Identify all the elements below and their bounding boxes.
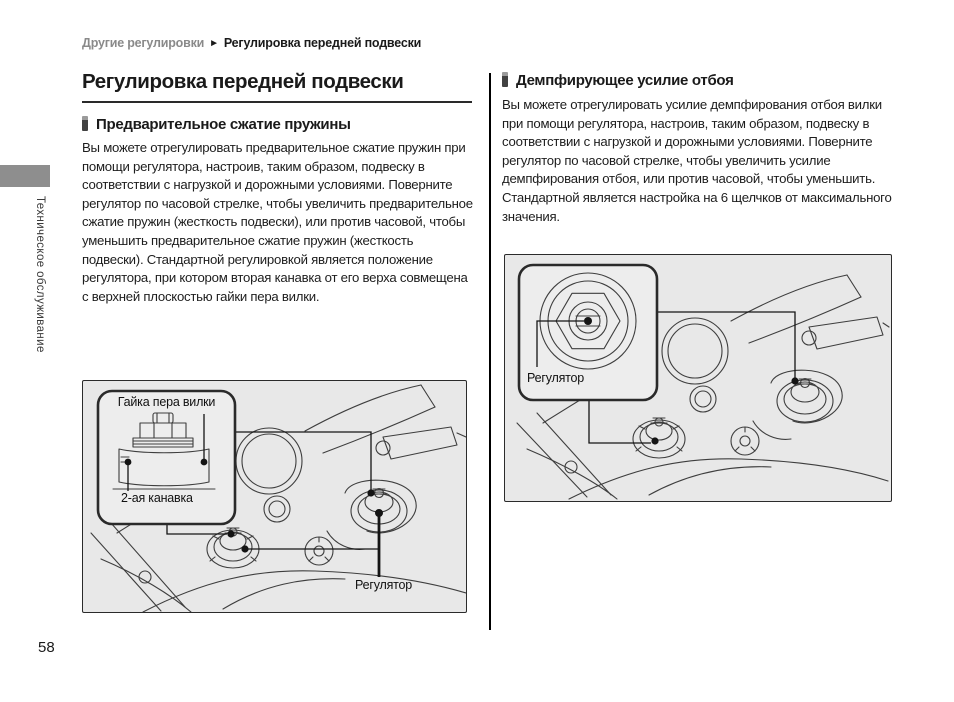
manual-page: Техническое обслуживание Другие регулиро… <box>0 0 954 702</box>
callout-connector-top <box>657 312 795 379</box>
page-number: 58 <box>38 639 55 656</box>
section-heading-text: Предварительное сжатие пружины <box>96 116 351 133</box>
breadcrumb: Другие регулировки►Регулировка передней … <box>82 36 421 50</box>
label-fork-cap-nut: Гайка пера вилки <box>98 395 235 409</box>
section-marker-icon <box>502 72 508 87</box>
section-heading-spring-preload: Предварительное сжатие пружины <box>82 116 351 133</box>
label-adjuster: Регулятор <box>527 371 584 385</box>
figure-rebound-damping: Регулятор <box>504 254 892 502</box>
figure-spring-preload: Гайка пера вилки 2-ая канавка Регулятор <box>82 380 467 613</box>
breadcrumb-arrow-icon: ► <box>209 38 219 49</box>
chapter-label: Техническое обслуживание <box>34 196 46 353</box>
title-rule <box>82 101 472 103</box>
breadcrumb-current: Регулировка передней подвески <box>224 36 421 50</box>
chapter-tab <box>0 165 50 187</box>
body-text-rebound-damping: Вы можете отрегулировать усилие демпфиро… <box>502 96 896 226</box>
callout-connector-bottom <box>167 524 227 534</box>
callout-connector-top <box>235 432 371 491</box>
section-heading-text: Демпфирующее усилие отбоя <box>516 72 734 89</box>
page-title: Регулировка передней подвески <box>82 70 403 94</box>
label-second-groove: 2-ая канавка <box>121 491 193 505</box>
section-marker-icon <box>82 116 88 131</box>
column-divider <box>489 73 491 630</box>
label-adjuster: Регулятор <box>355 578 412 592</box>
body-text-spring-preload: Вы можете отрегулировать предварительное… <box>82 139 476 306</box>
breadcrumb-parent: Другие регулировки <box>82 36 204 50</box>
callout-connector-bottom <box>589 400 651 443</box>
section-heading-rebound-damping: Демпфирующее усилие отбоя <box>502 72 734 89</box>
